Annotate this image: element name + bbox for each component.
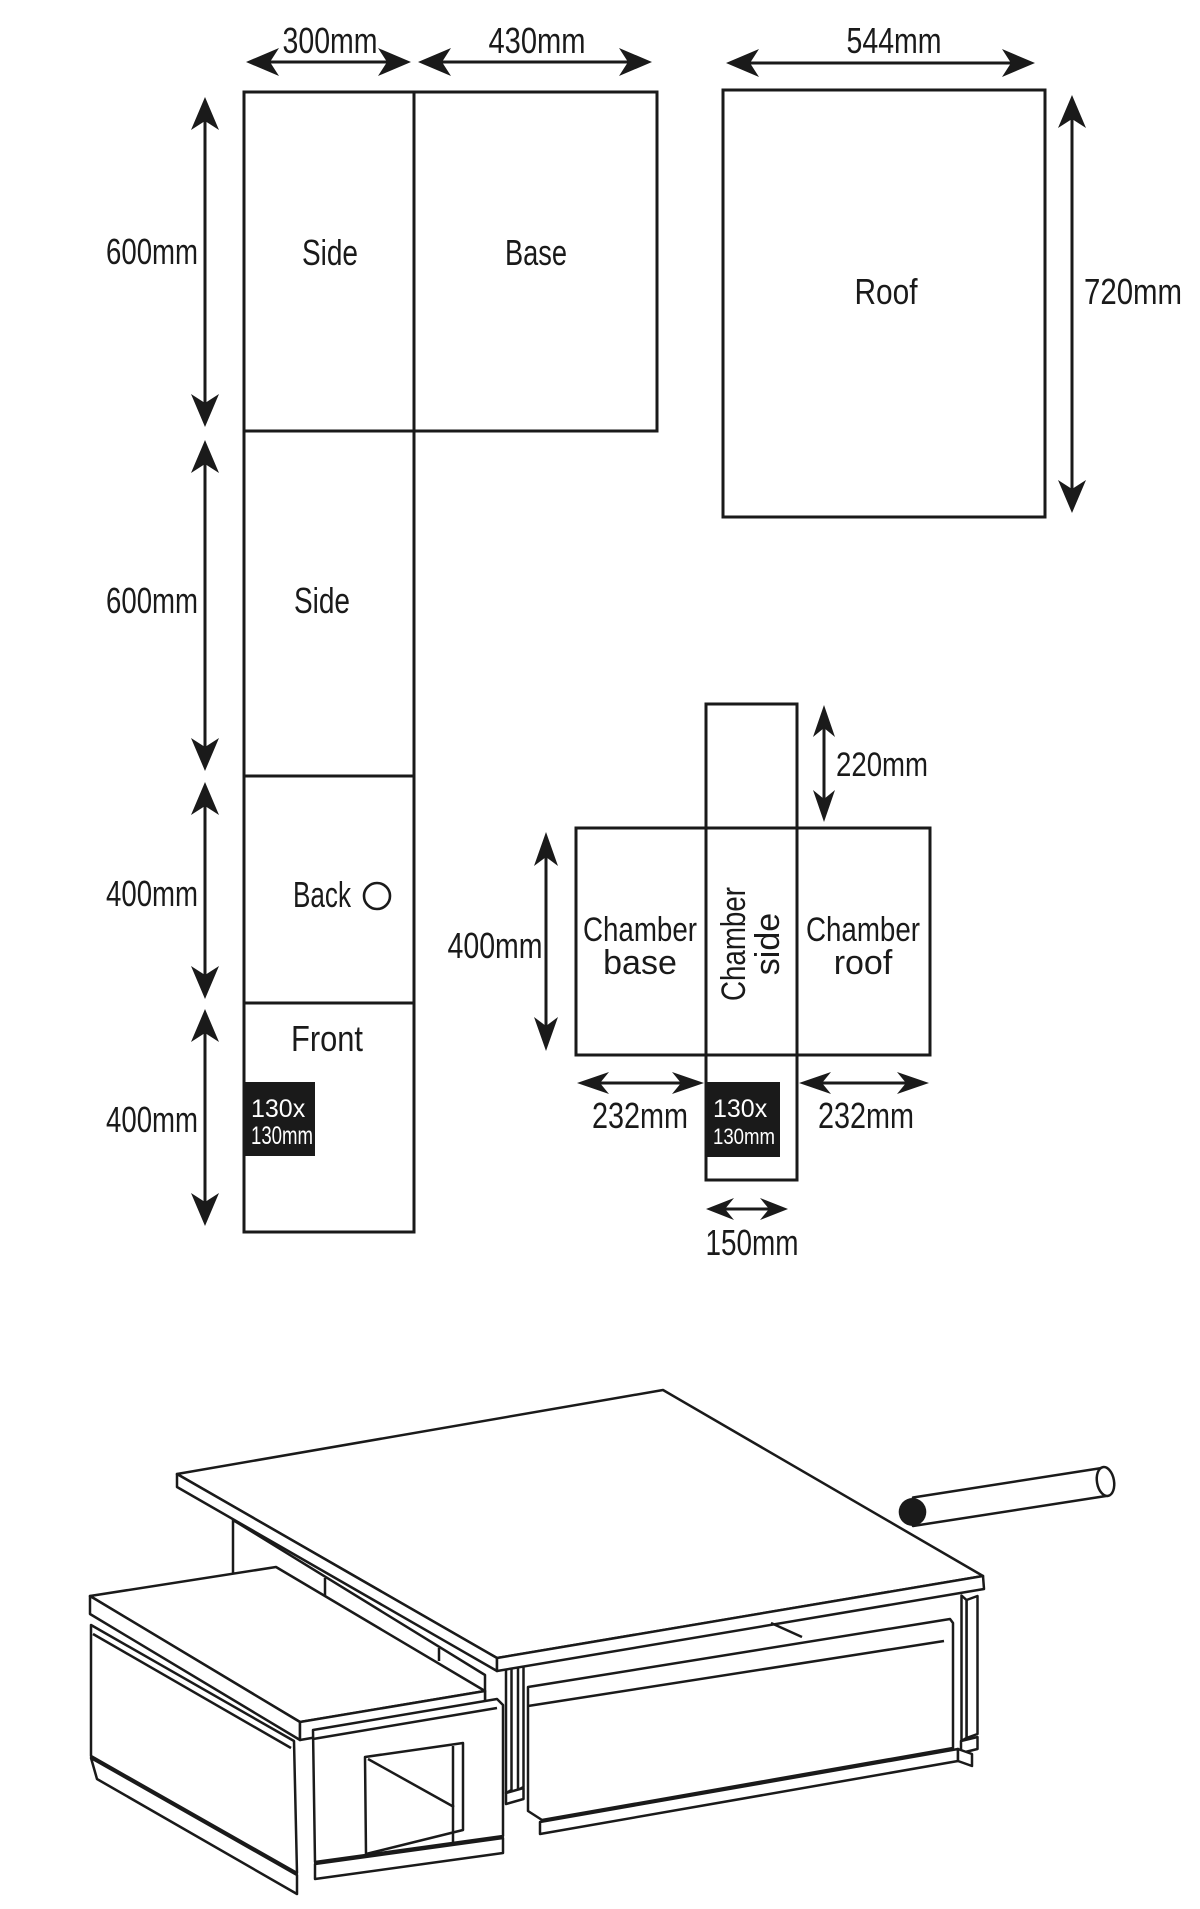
svg-text:Side: Side <box>294 580 350 621</box>
svg-text:300mm: 300mm <box>283 20 378 61</box>
svg-text:Side: Side <box>302 232 358 273</box>
svg-text:600mm: 600mm <box>106 231 198 272</box>
svg-text:400mm: 400mm <box>448 925 543 966</box>
svg-text:720mm: 720mm <box>1084 271 1182 312</box>
svg-text:220mm: 220mm <box>836 746 928 784</box>
svg-text:400mm: 400mm <box>106 1099 198 1140</box>
svg-text:430mm: 430mm <box>489 20 586 61</box>
svg-text:Front: Front <box>291 1018 363 1059</box>
svg-text:400mm: 400mm <box>106 873 198 914</box>
svg-text:Chamberside: Chamberside <box>715 887 787 1001</box>
svg-text:544mm: 544mm <box>847 20 942 61</box>
svg-text:600mm: 600mm <box>106 580 198 621</box>
svg-text:130x: 130x <box>713 1095 768 1123</box>
svg-text:150mm: 150mm <box>706 1222 799 1263</box>
svg-text:232mm: 232mm <box>592 1095 688 1136</box>
svg-text:Roof: Roof <box>855 271 919 312</box>
svg-text:130mm: 130mm <box>251 1122 313 1150</box>
svg-text:130mm: 130mm <box>713 1124 775 1149</box>
svg-text:base: base <box>603 944 677 982</box>
svg-text:232mm: 232mm <box>818 1095 914 1136</box>
svg-text:Base: Base <box>505 232 567 273</box>
svg-text:Back: Back <box>293 874 352 915</box>
svg-text:roof: roof <box>834 944 893 982</box>
svg-text:130x: 130x <box>251 1095 306 1123</box>
